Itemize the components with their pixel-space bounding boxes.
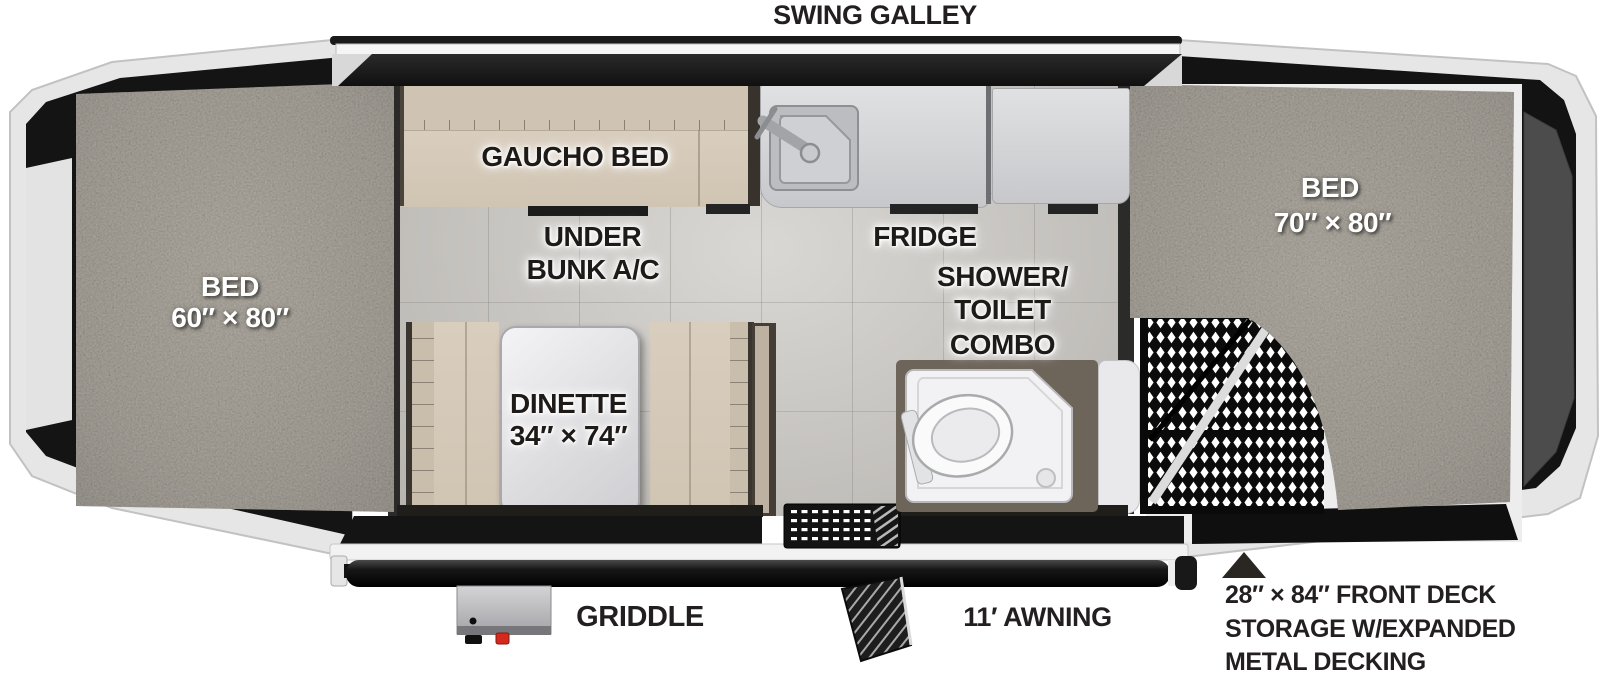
awning-end-cap bbox=[1175, 556, 1197, 590]
deck-note-line-2: STORAGE W/EXPANDED bbox=[1225, 616, 1565, 643]
griddle-knob bbox=[496, 633, 509, 644]
swing-galley-rail bbox=[330, 36, 1182, 86]
galley-sink-counter bbox=[760, 84, 990, 208]
front-deck-floor bbox=[1146, 84, 1522, 542]
awning-label: 11′ AWNING bbox=[950, 601, 1125, 633]
deck-mat bbox=[1192, 504, 1518, 544]
floorplan-page: SWING GALLEY BED 60″ × 80″ GAUCHO BED UN… bbox=[0, 0, 1600, 677]
left-bench-backrest bbox=[412, 322, 434, 514]
bed-left-label: BED bbox=[150, 271, 310, 303]
awning-roller-tube bbox=[346, 560, 1170, 587]
doorway-wall-face bbox=[755, 326, 769, 513]
fridge-label: FRIDGE bbox=[845, 221, 1005, 253]
cabinet-vent-2 bbox=[890, 204, 978, 214]
deck-note-line-1: 28″ × 84″ FRONT DECK bbox=[1225, 582, 1565, 609]
gaucho-bed-label: GAUCHO BED bbox=[430, 141, 720, 173]
bed-right-carpet bbox=[1124, 80, 1520, 516]
counter-divider bbox=[986, 86, 991, 204]
gaucho-bed-end bbox=[748, 84, 760, 206]
bottom-exterior bbox=[330, 505, 1197, 590]
left-interior-wall bbox=[388, 82, 400, 516]
gaucho-bed-stitching bbox=[400, 120, 748, 130]
griddle-unit bbox=[457, 586, 551, 644]
deck-strut bbox=[1152, 326, 1268, 502]
shower-toilet-label-2: TOILET bbox=[915, 294, 1090, 326]
awning-bracket bbox=[331, 556, 347, 586]
bed-left-size: 60″ × 80″ bbox=[140, 302, 320, 334]
under-bunk-vent bbox=[528, 206, 648, 216]
cabinet-vent-1 bbox=[706, 204, 750, 214]
bed-right-label: BED bbox=[1250, 172, 1410, 204]
griddle-label: GRIDDLE bbox=[560, 600, 720, 634]
under-bunk-ac-label-1: UNDER bbox=[500, 221, 685, 253]
fridge-cabinet bbox=[992, 88, 1130, 204]
left-bench-seam bbox=[465, 322, 467, 514]
under-bunk-ac-label-2: BUNK A/C bbox=[483, 254, 703, 286]
callout-arrow-icon bbox=[1222, 552, 1266, 578]
dinette-size: 34″ × 74″ bbox=[486, 420, 651, 452]
fold-down-step bbox=[842, 577, 911, 661]
gaucho-bed-left-edge bbox=[400, 84, 404, 206]
shower-toilet-label-3: COMBO bbox=[915, 329, 1090, 361]
right-end-panel bbox=[1524, 112, 1574, 486]
bed-right-size: 70″ × 80″ bbox=[1240, 207, 1425, 239]
cabinet-vent-3 bbox=[1048, 204, 1098, 214]
deck-note-line-3: METAL DECKING bbox=[1225, 649, 1565, 675]
shower-side-panel bbox=[1098, 360, 1140, 514]
dinette-label: DINETTE bbox=[486, 388, 651, 420]
shower-toilet-label-1: SHOWER/ bbox=[915, 261, 1090, 293]
expanded-metal-decking bbox=[1140, 312, 1324, 514]
right-bench-backrest bbox=[730, 322, 748, 514]
swing-galley-label: SWING GALLEY bbox=[690, 0, 1060, 30]
right-tent-end bbox=[1124, 40, 1598, 558]
right-bench-seam bbox=[689, 322, 691, 514]
